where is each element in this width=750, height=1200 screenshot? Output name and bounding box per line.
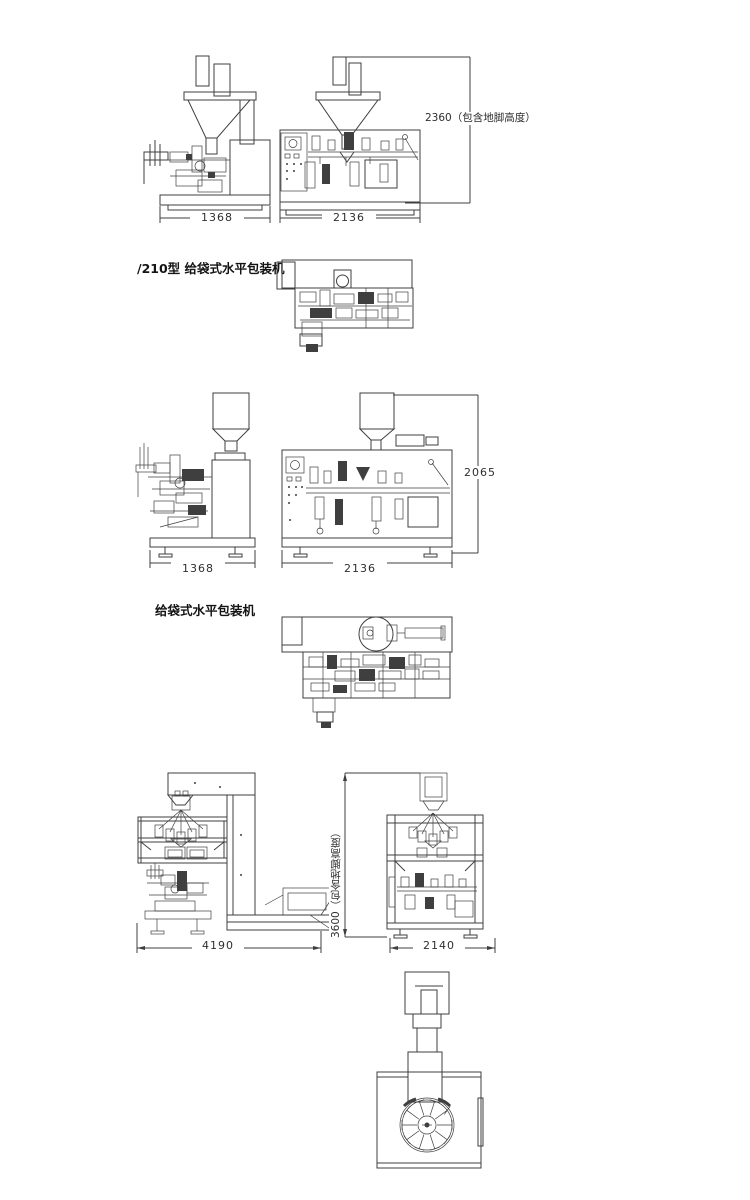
mid-plan-mechanism	[303, 652, 450, 698]
bottom-plan-view	[368, 960, 498, 1185]
system-front-view	[343, 773, 495, 953]
plan-outfeed-cluster	[300, 322, 322, 352]
outfeed-conveyor	[265, 888, 332, 930]
machine-title-210: /210型 给袋式水平包装机	[137, 261, 285, 276]
mid-side-view	[136, 393, 255, 568]
dim-top-front-width: 2136	[322, 211, 376, 224]
dim-bottom-system-width: 4190	[192, 939, 244, 952]
mid-control-panel	[286, 457, 304, 521]
weigher-platform	[138, 817, 227, 863]
system-side-view	[137, 773, 333, 953]
machine-title-mid: 给袋式水平包装机	[155, 603, 255, 618]
mid-plan-outfeed-cluster	[313, 698, 335, 728]
dim-bottom-front-width: 2140	[413, 939, 465, 952]
packer-side	[145, 863, 211, 934]
drawing-sheet: 1368 2136 2360（包含地脚高度） /210型 给袋式水平包装机	[0, 0, 750, 1200]
dim-top-side-width: 1368	[190, 211, 244, 224]
packer-front	[389, 873, 477, 917]
top-machine-drawing	[100, 40, 580, 240]
front-mechanism	[305, 132, 418, 188]
multihead-weigher-side	[155, 791, 207, 859]
rotary-weigher-plan	[400, 1098, 454, 1152]
dim-bottom-overall-height: 3600（包含地脚高度）	[329, 788, 343, 938]
middle-machine-drawing	[110, 385, 510, 580]
rotary-head-detail	[363, 625, 445, 641]
mid-front-view	[282, 393, 478, 568]
dim-mid-side-width: 1368	[171, 562, 225, 575]
control-panel	[281, 133, 307, 191]
mid-side-mechanism	[136, 443, 212, 527]
dim-top-overall-height: 2360（包含地脚高度）	[423, 112, 538, 125]
middle-machine-plan-view	[275, 595, 475, 740]
side-mechanism	[166, 146, 230, 192]
bottom-system-drawing	[125, 755, 520, 960]
top-machine-plan-view	[270, 250, 440, 360]
top-side-view	[144, 56, 270, 223]
top-front-view	[280, 57, 470, 223]
dim-mid-front-width: 2136	[333, 562, 387, 575]
dim-mid-overall-height: 2065	[455, 466, 505, 479]
